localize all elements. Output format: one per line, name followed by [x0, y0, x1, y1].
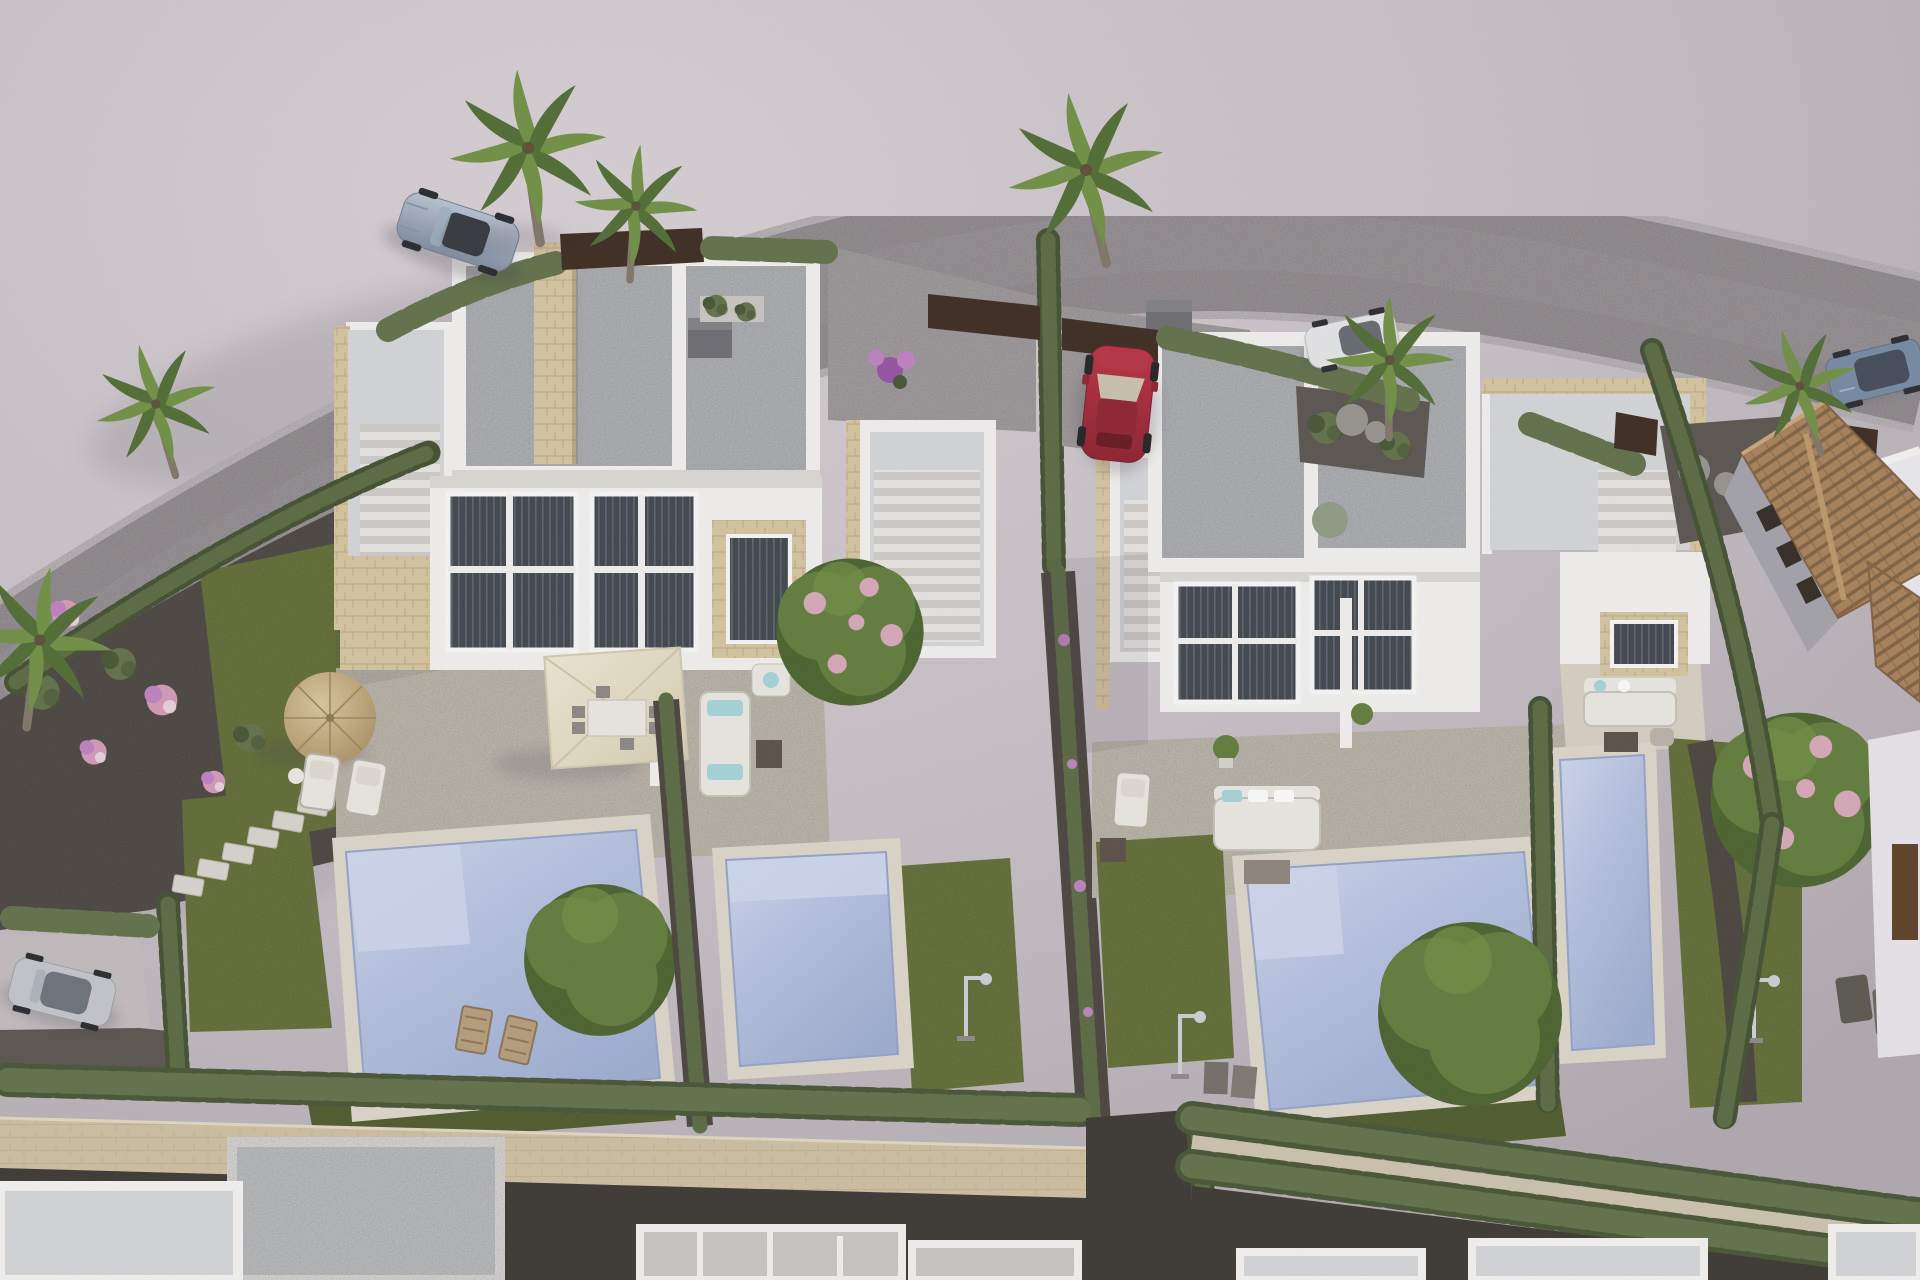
render-canvas — [0, 0, 1920, 1280]
aerial-development-render — [0, 0, 1920, 1280]
grain-overlay — [0, 0, 1920, 1280]
